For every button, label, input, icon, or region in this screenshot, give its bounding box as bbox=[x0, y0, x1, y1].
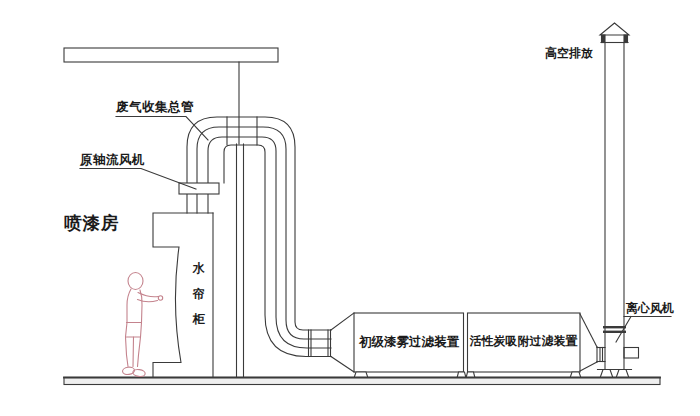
label-original-axial-fan: 原轴流风机 bbox=[80, 153, 145, 167]
leader-lines bbox=[80, 117, 671, 343]
person-figure bbox=[122, 273, 163, 378]
ground-line bbox=[64, 378, 660, 385]
label-high-altitude-discharge: 高空排放 bbox=[545, 47, 593, 61]
leader-exhaust-collection-pipe bbox=[116, 117, 208, 141]
centrifugal-fan-flange bbox=[603, 326, 626, 333]
roof-slab bbox=[64, 48, 278, 62]
fan-motor-stub bbox=[624, 348, 639, 359]
diagram-linework bbox=[0, 0, 700, 416]
exhaust-duct-assembly bbox=[187, 117, 331, 357]
diagram-canvas: 废气收集总管 原轴流风机 喷漆房 水帘柜 高空排放 离心风机 初级漆雾过滤装置 … bbox=[0, 0, 700, 416]
exhaust-stack bbox=[598, 23, 639, 378]
label-centrifugal-fan: 离心风机 bbox=[626, 302, 674, 316]
support-column bbox=[237, 144, 244, 378]
tank-outlet-cone bbox=[580, 314, 605, 371]
tank-inlet-funnel bbox=[331, 313, 354, 372]
label-spray-booth: 喷漆房 bbox=[64, 213, 120, 233]
label-water-curtain-cabinet: 水帘柜 bbox=[191, 256, 206, 333]
label-primary-paint-mist-filter: 初级漆雾过滤装置 bbox=[354, 335, 464, 349]
label-activated-carbon-filter: 活性炭吸附过滤装置 bbox=[467, 335, 580, 349]
stack-rain-cap bbox=[600, 23, 629, 43]
label-exhaust-collection-pipe: 废气收集总管 bbox=[116, 100, 194, 114]
